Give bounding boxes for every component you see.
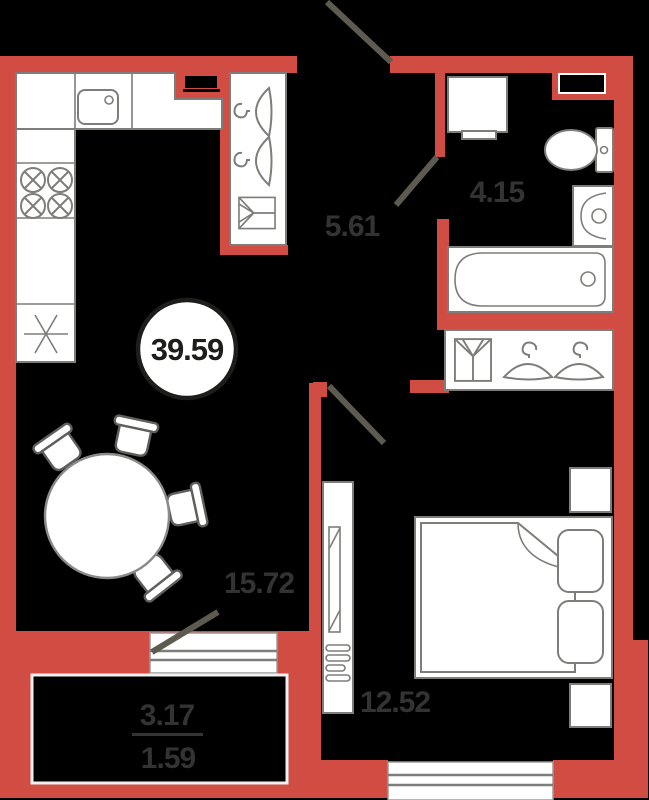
vent-underline: [183, 89, 220, 92]
balcony-area-reduced: 1.59: [141, 742, 196, 775]
total-area-badge: 39.59: [138, 300, 236, 398]
balcony-area-full: 3.17: [140, 699, 195, 732]
hall-closet-vertical: [230, 73, 286, 245]
bedroom-window: [388, 762, 553, 800]
bathroom-area-label: 4.15: [470, 176, 525, 209]
dining-table-icon: [45, 454, 169, 578]
wall-top-right: [390, 56, 633, 73]
wall-living-bedroom-divider: [309, 383, 321, 633]
wall-hall-bottom: [410, 380, 449, 393]
wall-bath-bottom: [437, 312, 615, 330]
hallway-area-label: 5.61: [325, 210, 380, 243]
nightstand-icon: [570, 684, 611, 727]
shirt-icon: [239, 197, 275, 228]
chair-icon: [109, 415, 159, 458]
pillow-icon: [558, 530, 603, 592]
wardrobe-mirror-icon: [329, 527, 340, 632]
kitchen-counter-left: [16, 129, 75, 362]
total-area-value: 39.59: [151, 332, 224, 367]
bathtub-icon: [448, 247, 613, 312]
bedroom-wardrobe: [323, 482, 353, 713]
toilet-icon: [545, 128, 613, 172]
fraction-line: [132, 733, 203, 736]
wall-top-left: [0, 56, 297, 73]
double-bed-icon: [415, 517, 612, 678]
entrance-door-swing-icon: [327, 2, 391, 62]
wall-bedroom-bottom-left: [321, 760, 388, 798]
hall-closet-horizontal: [445, 330, 613, 390]
chair-icon: [165, 482, 208, 532]
shirt-icon: [455, 339, 491, 381]
bedroom-area-label: 12.52: [360, 686, 430, 719]
bathroom-door-swing-icon: [396, 157, 437, 205]
bedroom-door-swing-icon: [329, 386, 384, 443]
pillow-icon: [558, 601, 603, 663]
wall-bath-upper: [435, 73, 445, 157]
wall-closet-stub: [220, 245, 288, 255]
nightstand-icon: [570, 468, 611, 512]
floorplan-svg: 39.59 5.61 4.15 15.72 12.52 3.17 1.59: [0, 0, 649, 800]
kitchen-sink-icon: [78, 90, 118, 124]
living-kitchen-area-label: 15.72: [224, 567, 294, 600]
wall-right-exterior-upper: [614, 73, 633, 643]
vent-shaft-icon: [559, 74, 605, 93]
washing-machine-icon: [448, 77, 507, 139]
dining-set: [32, 415, 208, 603]
washbasin-icon: [573, 186, 613, 246]
vent-shaft-icon: [185, 76, 217, 88]
floorplan-canvas: 39.59 5.61 4.15 15.72 12.52 3.17 1.59: [0, 0, 649, 800]
wall-bedroom-bottom-right: [553, 760, 648, 798]
